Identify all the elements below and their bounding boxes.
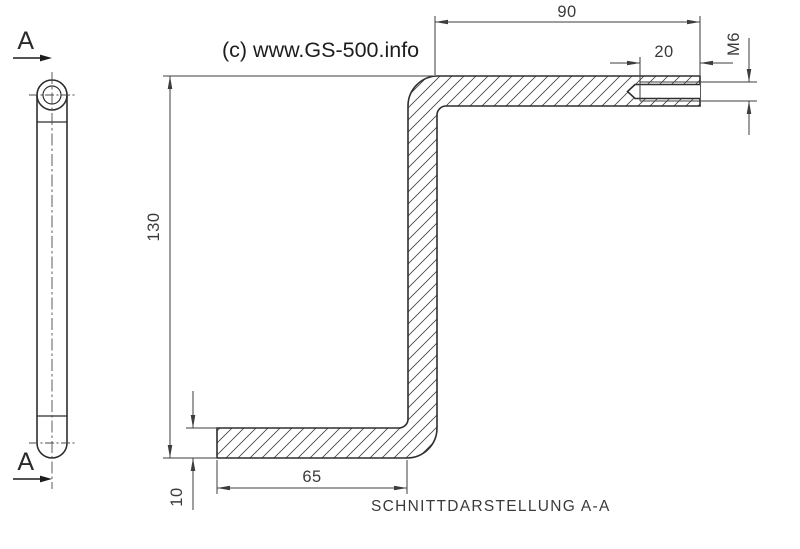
dimension-130: 130	[145, 76, 433, 458]
dim-m6-label: M6	[725, 32, 743, 56]
dimension-m6: M6	[700, 32, 757, 135]
hole-knockout	[628, 85, 701, 99]
dim-130-label: 130	[145, 212, 163, 241]
section-arrow-bottom: A	[13, 448, 52, 482]
dimension-65: 65	[217, 460, 407, 494]
section-letter-bottom: A	[17, 448, 34, 476]
watermark: (c) www.GS-500.info	[222, 38, 419, 62]
dim-10-label: 10	[168, 487, 186, 506]
dimension-10: 10	[168, 391, 217, 510]
dimension-90: 90	[435, 3, 700, 75]
section-letter-top: A	[17, 27, 34, 55]
section-arrow-top: A	[13, 27, 52, 61]
dim-65-label: 65	[302, 468, 321, 486]
dim-20-label: 20	[654, 43, 673, 61]
dim-90-label: 90	[557, 3, 576, 21]
tapped-hole	[628, 82, 701, 101]
side-view: A A	[13, 27, 75, 489]
engineering-drawing: A A 90	[0, 0, 800, 549]
section-view	[217, 76, 700, 458]
section-caption: SCHNITTDARSTELLUNG A-A	[371, 498, 611, 515]
drawing-canvas: A A 90	[0, 0, 800, 549]
z-profile	[217, 76, 700, 458]
